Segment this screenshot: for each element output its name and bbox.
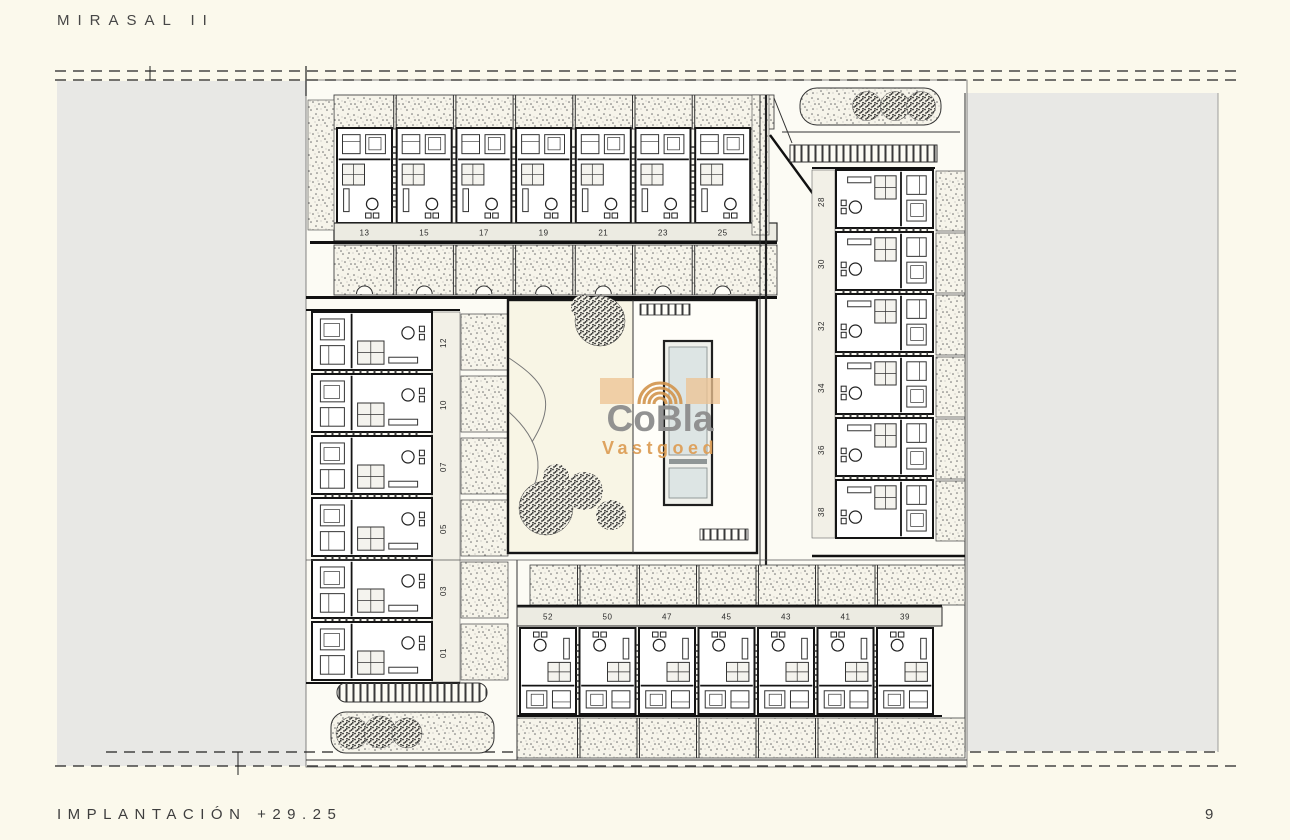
appliance [841, 208, 846, 214]
tree-icon [543, 464, 569, 490]
table [402, 451, 414, 463]
garden-plot [461, 376, 508, 432]
table [402, 513, 414, 525]
unit-label-top: 25 [718, 229, 728, 238]
appliance [898, 632, 904, 637]
garden-plot [461, 562, 508, 618]
table [832, 639, 844, 651]
pergola [337, 683, 487, 702]
kitchen-counter [523, 189, 529, 212]
terrace-furniture [671, 691, 689, 708]
kitchen-counter [463, 189, 469, 212]
table [402, 637, 414, 649]
terrace-furniture [907, 362, 926, 381]
unit-label-bottom: 52 [543, 613, 553, 622]
unit-label-top: 15 [419, 229, 429, 238]
tree-icon [364, 716, 396, 748]
table [665, 198, 677, 210]
appliance [419, 582, 424, 588]
appliance [672, 213, 678, 218]
appliance [545, 213, 551, 218]
table [605, 198, 617, 210]
kitchen-counter [848, 487, 871, 493]
kitchen-counter [861, 638, 867, 659]
appliance [485, 213, 491, 218]
unit-label-bottom: 45 [722, 613, 732, 622]
appliance [831, 632, 837, 637]
terrace-furniture [907, 176, 926, 195]
table [891, 639, 903, 651]
unit-label-bottom: 39 [900, 613, 910, 622]
terrace-furniture [641, 135, 659, 154]
terrace-furniture [462, 135, 480, 154]
unit-floorplan [312, 312, 432, 370]
garden-plot [936, 233, 965, 293]
kitchen-counter [389, 667, 418, 673]
table [849, 449, 861, 461]
unit-label-bottom: 50 [603, 613, 613, 622]
unit-floorplan [836, 480, 933, 538]
tree-icon [336, 717, 368, 749]
terrace-furniture [522, 135, 540, 154]
kitchen-counter [848, 177, 871, 183]
unit-label-bottom: 41 [841, 613, 851, 622]
deck-grate [700, 529, 748, 540]
tree-icon [881, 92, 910, 121]
appliance [419, 512, 424, 518]
kitchen-counter [389, 605, 418, 611]
appliance [419, 458, 424, 464]
garden-plot [936, 357, 965, 417]
terrace-furniture [320, 346, 344, 365]
table [486, 198, 498, 210]
terrace-furniture [701, 135, 719, 154]
unit-label-top: 17 [479, 229, 489, 238]
unit-label-right: 30 [817, 259, 826, 269]
unit-label-left: 05 [439, 524, 448, 534]
appliance [419, 326, 424, 332]
appliance [841, 270, 846, 276]
tree-icon [853, 92, 882, 121]
unit-label-right: 28 [817, 197, 826, 207]
kitchen-counter [848, 363, 871, 369]
site-plan-drawing: 1315171921232528303234363812100705030152… [0, 0, 1290, 840]
appliance [612, 213, 618, 218]
unit-floorplan [699, 628, 755, 714]
table [849, 201, 861, 213]
terrace-furniture [790, 691, 808, 708]
appliance [664, 213, 670, 218]
kitchen-counter [389, 543, 418, 549]
terrace-furniture [343, 135, 361, 154]
terrace-furniture [320, 656, 344, 675]
kitchen-counter [344, 189, 350, 212]
label-band [812, 170, 835, 538]
terrace-furniture [320, 470, 344, 489]
table [594, 639, 606, 651]
tree-icon [907, 92, 936, 121]
appliance [841, 324, 846, 330]
appliance [419, 334, 424, 340]
terrace-furniture [850, 691, 868, 708]
unit-label-left: 03 [439, 586, 448, 596]
terrace-furniture [907, 300, 926, 319]
unit-label-top: 21 [598, 229, 608, 238]
kitchen-counter [582, 189, 588, 212]
unit-label-top: 13 [360, 229, 370, 238]
road-left [57, 81, 306, 766]
appliance [425, 213, 431, 218]
unit-floorplan [818, 628, 874, 714]
terrace-furniture [909, 691, 927, 708]
appliance [419, 520, 424, 526]
unit-label-top: 19 [539, 229, 549, 238]
appliance [841, 510, 846, 515]
garden-strip [334, 245, 777, 295]
unit-floorplan [520, 628, 576, 714]
garden-plot [461, 500, 508, 556]
appliance [493, 213, 499, 218]
appliance [841, 200, 846, 206]
appliance [772, 632, 778, 637]
unit-floorplan [580, 628, 636, 714]
kitchen-counter [642, 189, 648, 212]
unit-floorplan [456, 128, 511, 223]
appliance [419, 388, 424, 394]
table [402, 327, 414, 339]
terrace-furniture [907, 486, 926, 505]
unit-floorplan [312, 498, 432, 556]
table [402, 575, 414, 587]
table [849, 387, 861, 399]
unit-floorplan [836, 294, 933, 352]
kitchen-counter [389, 419, 418, 425]
kitchen-counter [921, 638, 927, 659]
unit-label-left: 10 [439, 400, 448, 410]
unit-floorplan [836, 170, 933, 228]
page-number: 9 [1205, 806, 1215, 823]
appliance [841, 448, 846, 454]
garden-plot [461, 438, 508, 494]
tree-icon [392, 718, 422, 748]
appliance [732, 213, 738, 218]
tree-icon [519, 481, 573, 535]
garden-strip [308, 100, 334, 230]
appliance [373, 213, 379, 218]
unit-floorplan [312, 374, 432, 432]
terrace-furniture [612, 691, 630, 708]
appliance [841, 518, 846, 524]
unit-floorplan [516, 128, 571, 223]
kitchen-counter [403, 189, 409, 212]
tree-icon [565, 472, 603, 510]
terrace-furniture [320, 532, 344, 551]
kitchen-counter [389, 357, 418, 363]
kitchen-counter [389, 481, 418, 487]
appliance [601, 632, 607, 637]
table [772, 639, 784, 651]
brochure-page: MIRASAL II 13151719212325283032343638121… [0, 0, 1290, 840]
appliance [712, 632, 718, 637]
terrace-furniture [907, 424, 926, 443]
appliance [779, 632, 785, 637]
tree-icon [571, 295, 595, 319]
appliance [419, 574, 424, 580]
unit-floorplan [312, 560, 432, 618]
appliance [419, 636, 424, 642]
table [426, 198, 438, 210]
unit-label-bottom: 43 [781, 613, 791, 622]
appliance [724, 213, 730, 218]
appliance [604, 213, 610, 218]
pool-step-edge [669, 459, 707, 464]
table [849, 511, 861, 523]
unit-label-right: 34 [817, 383, 826, 393]
appliance [653, 632, 659, 637]
garden-plot [936, 171, 965, 231]
pool-steps [669, 468, 707, 498]
label-band [432, 312, 460, 682]
appliance [841, 386, 846, 392]
appliance [552, 213, 558, 218]
appliance [891, 632, 897, 637]
appliance [433, 213, 439, 218]
unit-label-top: 23 [658, 229, 668, 238]
appliance [841, 262, 846, 268]
kitchen-counter [564, 638, 570, 659]
appliance [419, 450, 424, 456]
kitchen-counter [848, 301, 871, 307]
unit-label-left: 12 [439, 338, 448, 348]
garden-plot [936, 295, 965, 355]
kitchen-counter [848, 425, 871, 431]
terrace-furniture [731, 691, 749, 708]
unit-label-left: 01 [439, 648, 448, 658]
terrace-furniture [907, 238, 926, 257]
appliance [593, 632, 599, 637]
table [546, 198, 558, 210]
kitchen-counter [802, 638, 808, 659]
tree-icon [596, 500, 626, 530]
unit-label-left: 07 [439, 462, 448, 472]
garden-plot [461, 624, 508, 680]
terrace-furniture [320, 594, 344, 613]
unit-floorplan [836, 356, 933, 414]
unit-floorplan [636, 128, 691, 223]
unit-label-right: 32 [817, 321, 826, 331]
table [849, 263, 861, 275]
unit-floorplan [337, 128, 392, 223]
appliance [841, 456, 846, 462]
unit-label-right: 38 [817, 507, 826, 517]
terrace-furniture [402, 135, 420, 154]
table [534, 639, 546, 651]
appliance [419, 644, 424, 650]
unit-floorplan [576, 128, 631, 223]
unit-floorplan [836, 232, 933, 290]
unit-label-right: 36 [817, 445, 826, 455]
deck-grate [640, 304, 690, 315]
unit-floorplan [312, 436, 432, 494]
table [849, 325, 861, 337]
table [653, 639, 665, 651]
kitchen-counter [848, 239, 871, 245]
unit-label-bottom: 47 [662, 613, 672, 622]
appliance [720, 632, 726, 637]
kitchen-counter [683, 638, 689, 659]
table [725, 198, 737, 210]
footer-label: IMPLANTACIÓN +29.25 [57, 806, 342, 823]
garden-plot [936, 481, 965, 541]
garden-strip [334, 95, 774, 129]
label-band [334, 223, 777, 241]
unit-floorplan [312, 622, 432, 680]
kitchen-counter [742, 638, 748, 659]
unit-floorplan [877, 628, 933, 714]
terrace-furniture [552, 691, 570, 708]
pergola [790, 145, 937, 162]
appliance [541, 632, 547, 637]
appliance [660, 632, 666, 637]
appliance [534, 632, 540, 637]
unit-floorplan [758, 628, 814, 714]
table [402, 389, 414, 401]
pool-water [669, 347, 707, 455]
garden-plot [936, 419, 965, 479]
appliance [419, 396, 424, 402]
unit-floorplan [397, 128, 452, 223]
road-right [967, 93, 1218, 751]
table [713, 639, 725, 651]
appliance [841, 394, 846, 400]
terrace-furniture [320, 408, 344, 427]
garden-strip [517, 718, 965, 758]
unit-floorplan [695, 128, 750, 223]
kitchen-counter [623, 638, 629, 659]
kitchen-counter [702, 189, 708, 212]
unit-floorplan [639, 628, 695, 714]
unit-floorplan [836, 418, 933, 476]
appliance [839, 632, 845, 637]
appliance [841, 332, 846, 338]
garden-strip [530, 565, 965, 605]
table [366, 198, 378, 210]
garden-plot [461, 314, 508, 370]
terrace-furniture [581, 135, 599, 154]
appliance [366, 213, 372, 218]
